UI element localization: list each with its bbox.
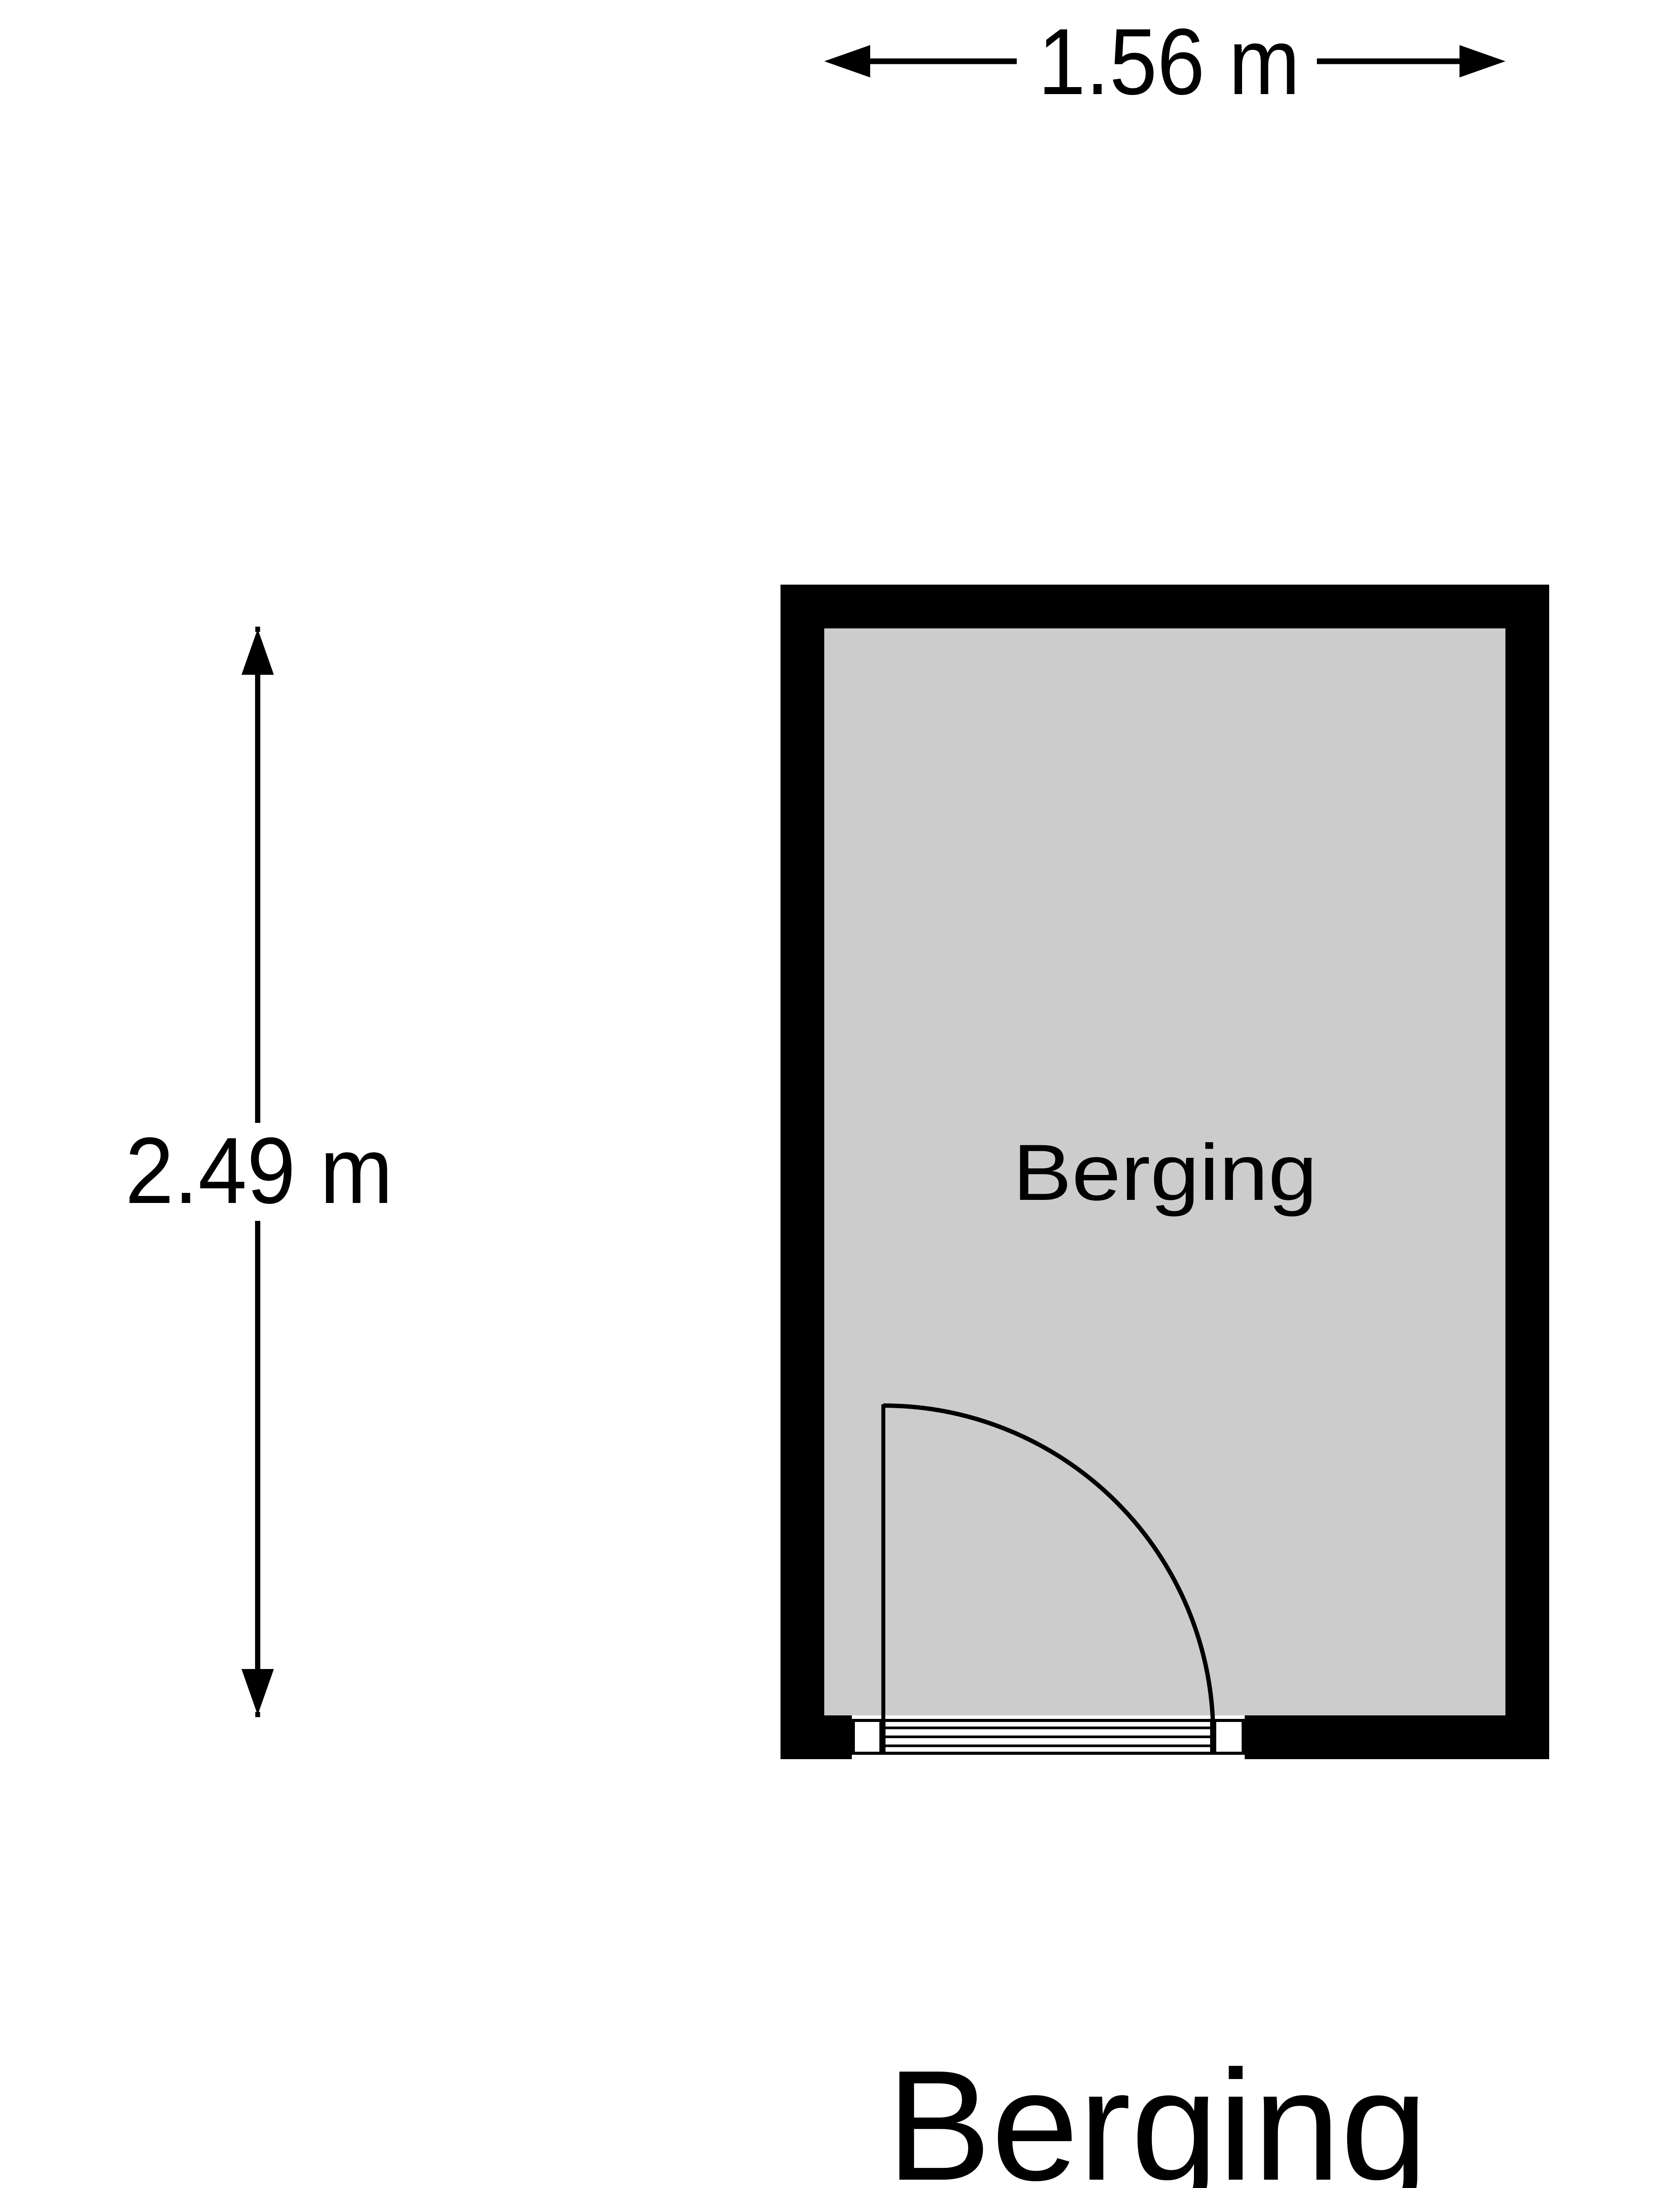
svg-text:2.49 m: 2.49 m xyxy=(125,1118,393,1223)
svg-text:Berging: Berging xyxy=(1013,1128,1317,1217)
svg-text:Berging: Berging xyxy=(886,2038,1428,2188)
svg-text:1.56 m: 1.56 m xyxy=(1038,9,1300,114)
